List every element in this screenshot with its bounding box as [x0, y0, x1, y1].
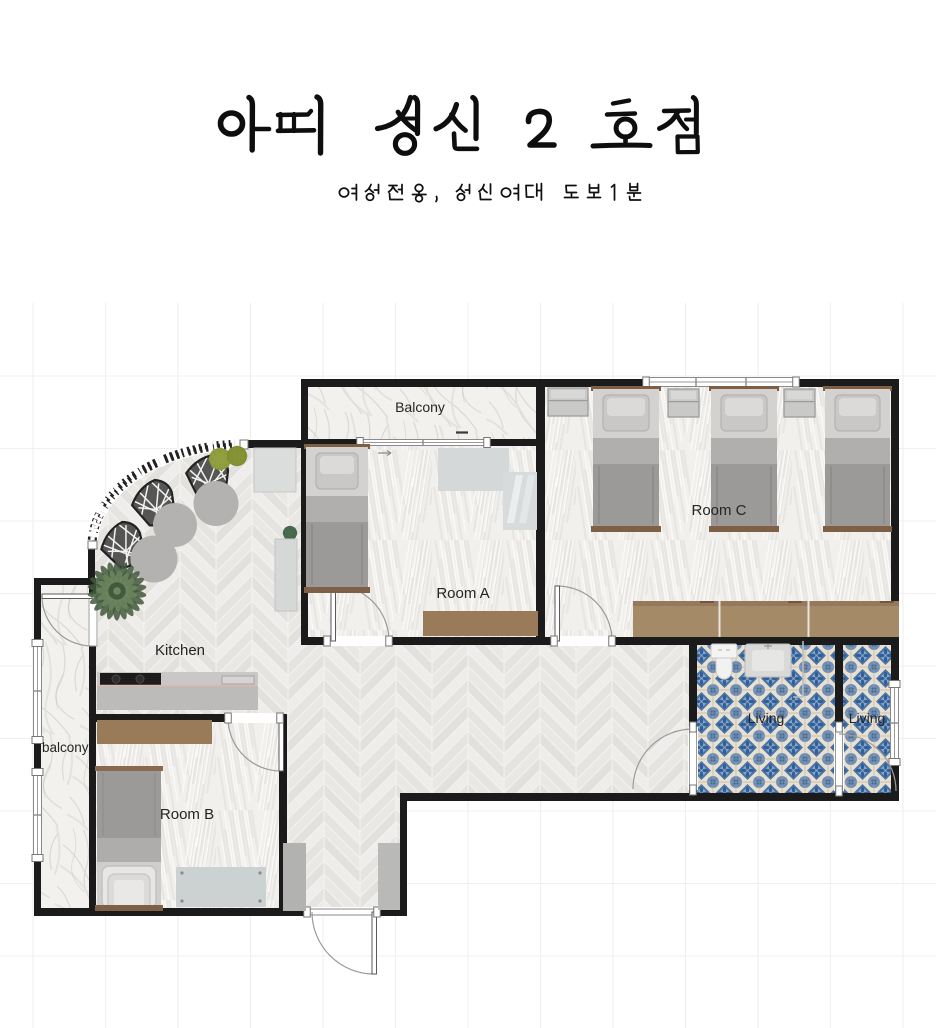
svg-text:Balcony: Balcony	[395, 399, 445, 415]
svg-text:Living: Living	[849, 710, 886, 726]
svg-text:Room A: Room A	[436, 585, 489, 602]
svg-text:Room C: Room C	[691, 502, 746, 519]
svg-text:Living: Living	[748, 710, 785, 726]
svg-text:Kitchen: Kitchen	[155, 642, 205, 659]
svg-text:balcony: balcony	[42, 740, 89, 755]
svg-text:Room B: Room B	[160, 806, 214, 823]
